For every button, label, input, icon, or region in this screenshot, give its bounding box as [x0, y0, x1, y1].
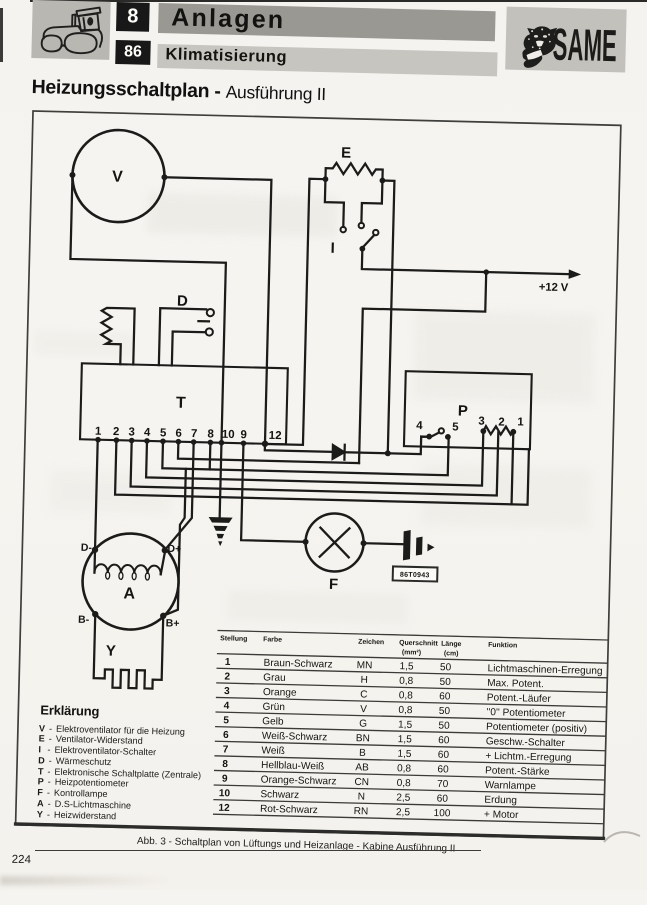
svg-text:50: 50	[439, 677, 451, 688]
svg-text:+ Lichtm.-Erregung: + Lichtm.-Erregung	[485, 751, 571, 764]
svg-text:Erdung: Erdung	[484, 795, 517, 807]
svg-text:50: 50	[440, 662, 452, 673]
svg-text:B: B	[359, 748, 366, 759]
svg-text:60: 60	[439, 691, 451, 702]
svg-text:BN: BN	[356, 733, 370, 744]
svg-text:12: 12	[218, 803, 230, 814]
svg-text:I: I	[330, 240, 335, 257]
svg-text:RN: RN	[354, 806, 369, 817]
svg-text:Farbe: Farbe	[263, 636, 282, 643]
svg-text:AB: AB	[355, 762, 369, 773]
svg-text:3: 3	[478, 415, 485, 427]
svg-text:60: 60	[437, 793, 449, 804]
svg-text:60: 60	[437, 764, 449, 775]
svg-text:Gelb: Gelb	[262, 716, 284, 728]
svg-text:70: 70	[437, 779, 449, 790]
svg-text:Grün: Grün	[262, 702, 285, 714]
svg-text:Potent.-Läufer: Potent.-Läufer	[487, 692, 552, 705]
svg-text:6: 6	[175, 428, 182, 440]
svg-text:2: 2	[498, 416, 505, 428]
svg-text:0,8: 0,8	[399, 676, 414, 687]
svg-text:+ Motor: + Motor	[484, 809, 519, 821]
svg-text:Hellblau-Weiß: Hellblau-Weiß	[261, 760, 324, 773]
svg-text:0,8: 0,8	[399, 690, 414, 701]
svg-text:F: F	[329, 576, 339, 593]
svg-text:D+: D+	[167, 543, 181, 555]
svg-text:9: 9	[222, 774, 228, 785]
svg-text:G: G	[359, 719, 367, 730]
svg-text:12: 12	[269, 430, 282, 442]
svg-text:B+: B+	[166, 617, 180, 629]
svg-text:10: 10	[219, 788, 231, 799]
svg-text:86T0943: 86T0943	[400, 572, 430, 580]
svg-text:4: 4	[144, 427, 151, 439]
svg-text:E: E	[341, 145, 351, 162]
svg-text:B-: B-	[78, 614, 90, 626]
svg-text:Orange: Orange	[263, 687, 297, 699]
svg-text:2,5: 2,5	[396, 807, 411, 818]
svg-text:1: 1	[225, 657, 231, 668]
svg-text:7: 7	[191, 428, 198, 440]
svg-text:5: 5	[160, 427, 167, 439]
svg-text:Weiß-Schwarz: Weiß-Schwarz	[262, 731, 328, 744]
svg-text:3: 3	[224, 686, 230, 697]
svg-text:7: 7	[223, 744, 229, 755]
svg-text:8: 8	[222, 759, 228, 770]
svg-text:Warnlampe: Warnlampe	[485, 780, 537, 792]
svg-text:60: 60	[438, 735, 450, 746]
svg-text:8: 8	[207, 428, 214, 440]
svg-text:2: 2	[224, 671, 230, 682]
svg-text:''0'' Potentiometer: ''0'' Potentiometer	[486, 707, 566, 720]
svg-text:CN: CN	[354, 777, 369, 788]
svg-text:H: H	[360, 675, 368, 686]
svg-text:Potent.-Stärke: Potent.-Stärke	[485, 765, 550, 778]
svg-text:3: 3	[128, 426, 135, 438]
svg-text:Querschnitt: Querschnitt	[399, 640, 439, 648]
svg-text:Max. Potent.: Max. Potent.	[487, 678, 544, 690]
svg-text:1,5: 1,5	[399, 661, 414, 672]
svg-text:MN: MN	[357, 660, 373, 671]
svg-text:P: P	[458, 402, 468, 419]
svg-text:Grau: Grau	[263, 672, 286, 684]
svg-text:Funktion: Funktion	[488, 642, 517, 650]
svg-text:(mm²): (mm²)	[402, 649, 421, 656]
svg-text:1: 1	[517, 416, 524, 428]
svg-text:Länge: Länge	[441, 641, 462, 648]
svg-text:V: V	[112, 168, 123, 185]
svg-text:6: 6	[223, 730, 229, 741]
svg-text:D: D	[177, 293, 188, 310]
svg-text:1,5: 1,5	[398, 720, 413, 731]
svg-text:Stellung: Stellung	[220, 635, 247, 643]
svg-text:(cm): (cm)	[444, 650, 459, 657]
svg-text:100: 100	[433, 808, 450, 819]
svg-text:0,8: 0,8	[397, 778, 412, 789]
svg-text:1: 1	[95, 426, 102, 438]
svg-text:Orange-Schwarz: Orange-Schwarz	[261, 775, 337, 788]
svg-text:0,8: 0,8	[397, 763, 412, 774]
svg-text:V: V	[360, 704, 367, 715]
svg-text:Rot-Schwarz: Rot-Schwarz	[260, 804, 318, 816]
svg-text:50: 50	[438, 720, 450, 731]
svg-text:2: 2	[113, 426, 120, 438]
svg-text:A: A	[123, 585, 135, 602]
svg-text:9: 9	[240, 429, 247, 441]
svg-text:5: 5	[223, 715, 229, 726]
svg-text:Braun-Schwarz: Braun-Schwarz	[263, 658, 332, 671]
svg-text:1,5: 1,5	[398, 734, 413, 745]
svg-text:Y: Y	[106, 642, 116, 659]
svg-text:10: 10	[222, 429, 235, 441]
svg-text:50: 50	[439, 706, 451, 717]
svg-text:0,8: 0,8	[398, 705, 413, 716]
svg-text:1,5: 1,5	[397, 749, 412, 760]
svg-text:Schwarz: Schwarz	[260, 789, 299, 801]
svg-text:N: N	[358, 792, 366, 803]
svg-text:T: T	[176, 395, 186, 412]
svg-text:5: 5	[452, 421, 459, 433]
svg-text:Weiß: Weiß	[261, 745, 285, 757]
svg-text:60: 60	[438, 750, 450, 761]
svg-text:4: 4	[416, 420, 423, 432]
svg-text:D-: D-	[81, 542, 93, 554]
svg-text:C: C	[360, 689, 368, 700]
svg-text:Geschw.-Schalter: Geschw.-Schalter	[486, 736, 566, 749]
svg-text:2,5: 2,5	[396, 792, 411, 803]
svg-text:+12 V: +12 V	[539, 281, 569, 294]
svg-text:Zeichen: Zeichen	[358, 639, 384, 647]
svg-text:4: 4	[224, 701, 230, 712]
